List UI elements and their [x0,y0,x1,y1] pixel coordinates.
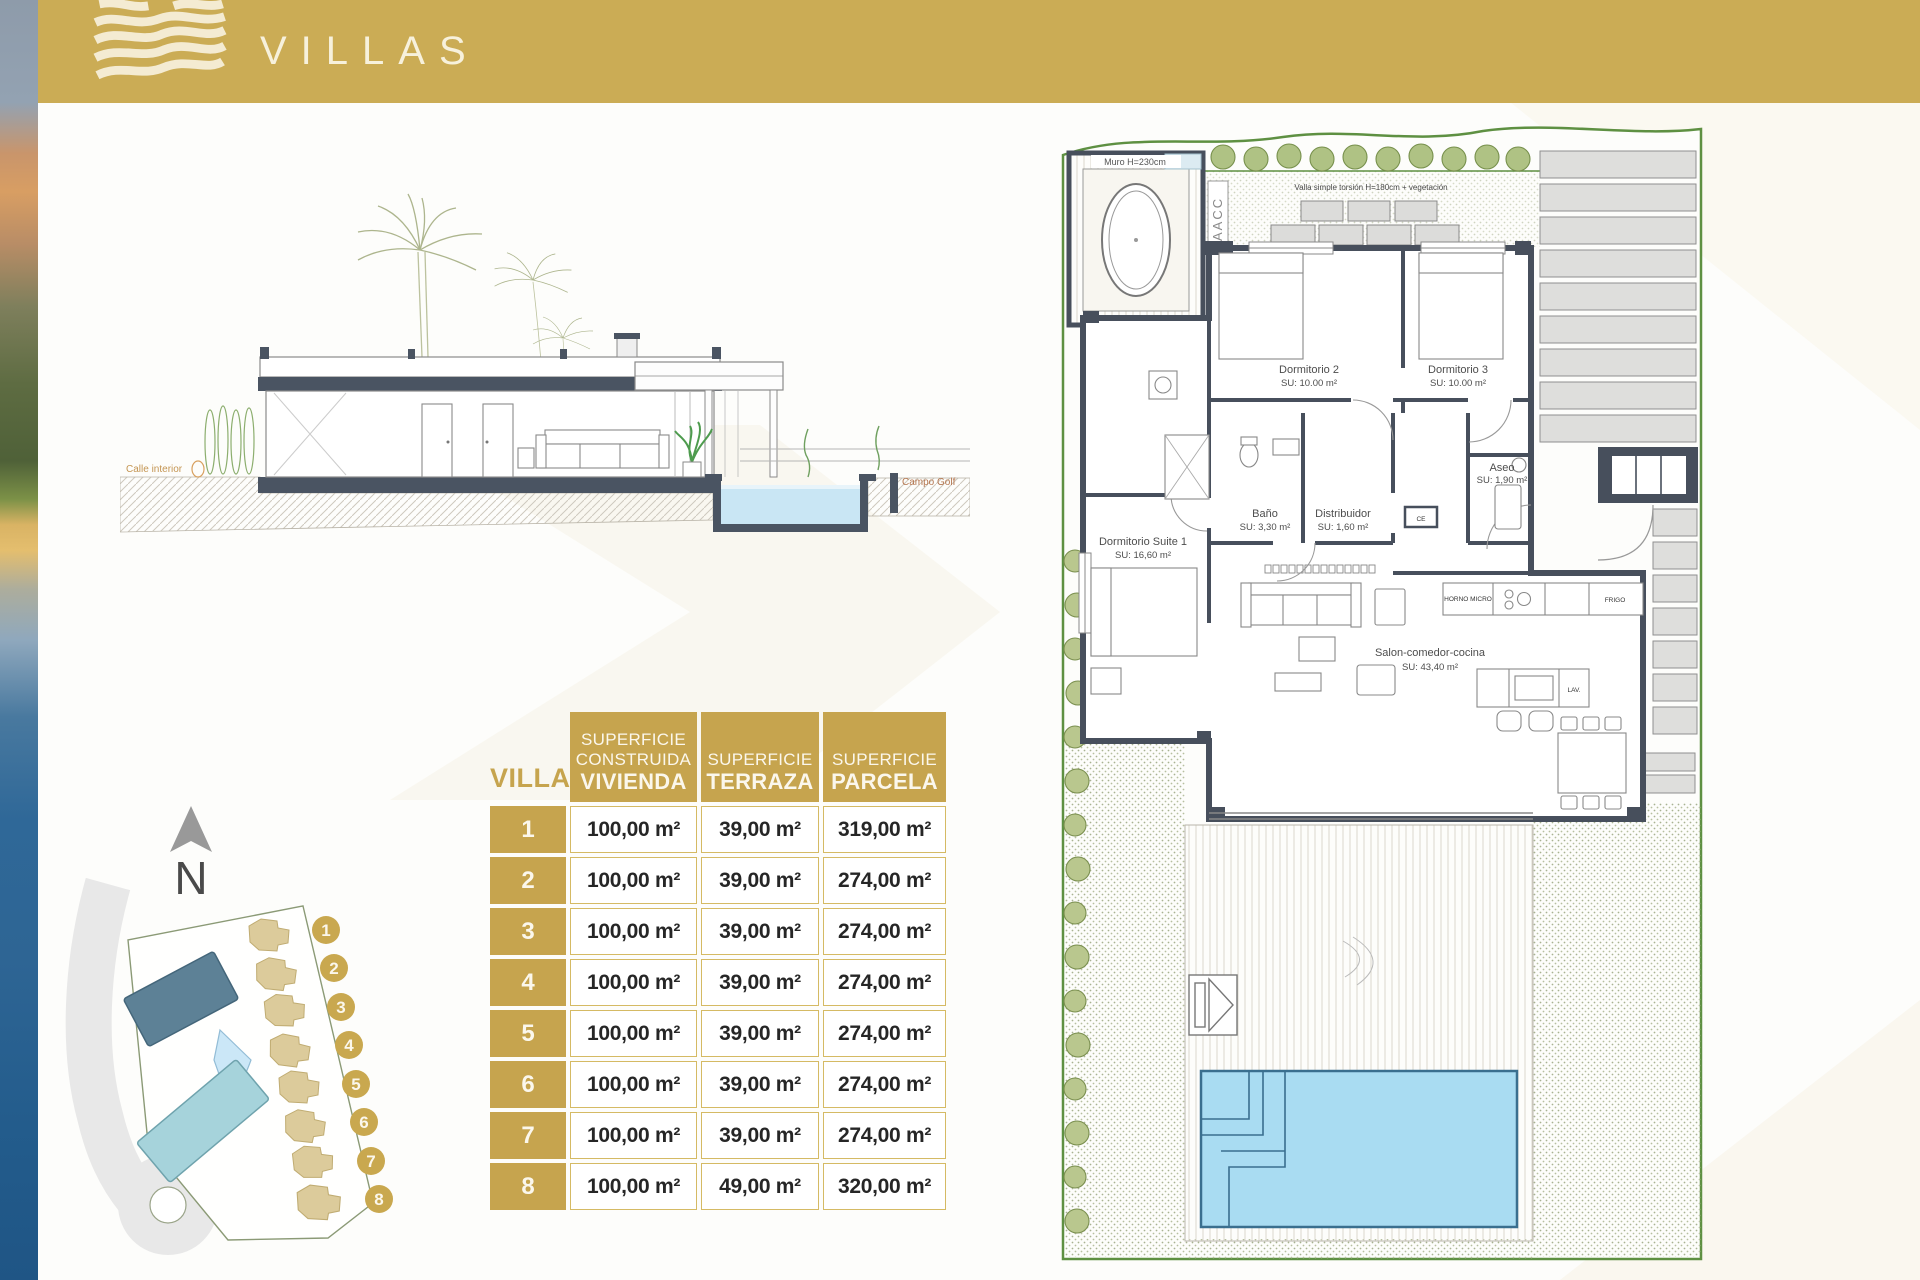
surfaces-table: VILLA SUPERFICIE CONSTRUIDA VIVIENDA SUP… [490,712,942,1210]
north-arrow-icon: N [170,806,212,904]
pool-section [705,474,876,532]
table-header-vivienda: SUPERFICIE CONSTRUIDA VIVIENDA [570,712,697,802]
table-header-terraza: SUPERFICIE TERRAZA [701,712,819,802]
svg-text:4: 4 [344,1036,354,1055]
climber-plants [804,426,879,477]
table-row-number: 3 [490,908,566,955]
villa-floor-plan: Muro H=230cm Valla simple torsión H=180c… [1053,113,1713,1273]
table-row-number: 7 [490,1112,566,1159]
table-cell: 320,00 m² [823,1163,946,1210]
table-cell: 39,00 m² [701,1061,819,1108]
swimming-pool [1201,1071,1517,1227]
table-header-parcela: SUPERFICIE PARCELA [823,712,946,802]
table-cell: 274,00 m² [823,1061,946,1108]
room-label-suite: Dormitorio Suite 1 [1099,536,1187,548]
table-cell: 274,00 m² [823,959,946,1006]
table-cell: 100,00 m² [570,806,697,853]
room-label-dorm2: Dormitorio 2 [1279,364,1339,376]
pool-storage-box [1189,975,1237,1035]
side-photo-strip [0,0,38,1280]
svg-text:SU: 1,60 m²: SU: 1,60 m² [1318,522,1369,533]
table-cell: 49,00 m² [701,1163,819,1210]
table-cell: 39,00 m² [701,908,819,955]
table-cell: 100,00 m² [570,1010,697,1057]
table-row-number: 2 [490,857,566,904]
fence-note: Valla simple torsión H=180cm + vegetació… [1294,183,1447,192]
svg-text:SU: 1,90 m²: SU: 1,90 m² [1477,475,1528,486]
golf-label: Campo Golf [902,477,956,488]
table-cell: 39,00 m² [701,959,819,1006]
table-cell: 100,00 m² [570,857,697,904]
svg-text:8: 8 [374,1190,383,1209]
villa-cross-section-drawing: Calle interior Campo Golf [120,180,970,540]
table-cell: 274,00 m² [823,1010,946,1057]
table-cell: 319,00 m² [823,806,946,853]
table-cell: 39,00 m² [701,1010,819,1057]
svg-text:CE: CE [1416,516,1426,523]
svg-text:SU: 3,30 m²: SU: 3,30 m² [1240,522,1291,533]
label-lav: LAV. [1567,687,1580,694]
room-label-salon: Salon-comedor-cocina [1375,647,1486,659]
svg-text:7: 7 [366,1152,375,1171]
spa-enclosure [1069,153,1203,325]
wall-note: Muro H=230cm [1104,157,1166,167]
table-cell: 100,00 m² [570,1112,697,1159]
svg-text:AACC: AACC [1210,197,1225,241]
table-row-number: 4 [490,959,566,1006]
svg-text:3: 3 [336,998,345,1017]
svg-text:2: 2 [329,959,338,978]
table-row-number: 6 [490,1061,566,1108]
svg-text:5: 5 [351,1075,360,1094]
brand-wave-logo-icon [90,0,230,86]
floor-slab [258,477,713,493]
svg-text:SU: 10.00 m²: SU: 10.00 m² [1281,378,1337,389]
table-row-number: 1 [490,806,566,853]
table-cell: 274,00 m² [823,908,946,955]
table-cell: 100,00 m² [570,908,697,955]
table-villa-header: VILLA [490,763,566,802]
golf-boundary-post [890,473,898,513]
svg-text:SU: 43,40 m²: SU: 43,40 m² [1402,662,1458,673]
svg-text:6: 6 [359,1113,368,1132]
table-cell: 100,00 m² [570,1163,697,1210]
table-cell: 39,00 m² [701,857,819,904]
table-cell: 274,00 m² [823,1112,946,1159]
svg-text:1: 1 [321,921,330,940]
room-label-distribuidor: Distribuidor [1315,508,1371,520]
aacc-label: AACC [1208,181,1228,245]
room-label-aseo: Aseo [1489,462,1514,474]
table-cell: 39,00 m² [701,1112,819,1159]
electrical-closet: CE [1405,507,1437,527]
table-cell: 274,00 m² [823,857,946,904]
street-label: Calle interior [126,464,183,475]
sofa-section [518,430,669,468]
site-plan-map: N 1 2 3 4 5 6 7 8 [58,798,413,1263]
label-horno-micro: HORNO MICRO [1444,596,1492,603]
table-cell: 39,00 m² [701,806,819,853]
table-row-number: 5 [490,1010,566,1057]
table-cell: 100,00 m² [570,959,697,1006]
table-row-number: 8 [490,1163,566,1210]
room-label-bano: Baño [1252,508,1278,520]
svg-text:N: N [174,852,207,904]
svg-text:SU: 16,60 m²: SU: 16,60 m² [1115,550,1171,561]
label-frigo: FRIGO [1605,597,1626,604]
svg-text:SU: 10.00 m²: SU: 10.00 m² [1430,378,1486,389]
room-label-dorm3: Dormitorio 3 [1428,364,1488,376]
street-hedge [192,406,254,477]
page-title: VILLAS [260,0,480,103]
table-cell: 100,00 m² [570,1061,697,1108]
header-bar: VILLAS [38,0,1920,103]
